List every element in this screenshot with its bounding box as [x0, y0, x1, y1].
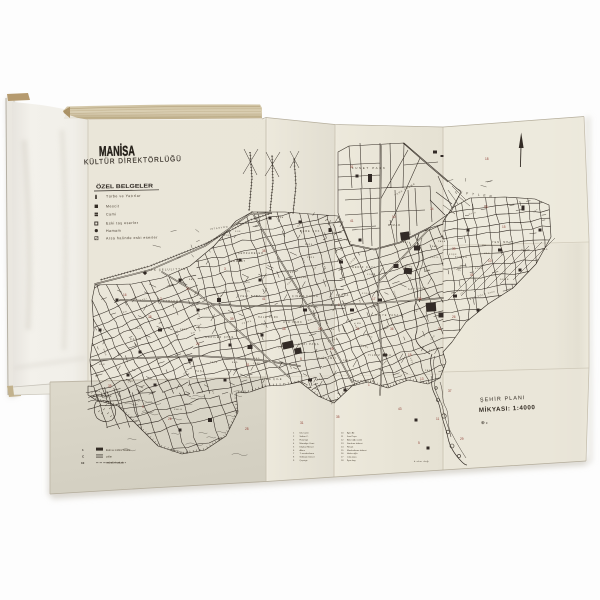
svg-text:BAĞ: BAĞ — [254, 357, 260, 360]
svg-text:MH: MH — [357, 323, 361, 325]
svg-text:Lala paşa: Lala paşa — [347, 457, 357, 459]
svg-text:HALK PARK: HALK PARK — [258, 316, 279, 319]
svg-text:39: 39 — [318, 327, 322, 331]
svg-text:PARK: PARK — [343, 359, 351, 362]
svg-text:38: 38 — [282, 327, 286, 331]
svg-text:KUŞLU: KUŞLU — [455, 256, 468, 259]
svg-text:5: 5 — [418, 441, 420, 445]
svg-text:VELI BABA: VELI BABA — [240, 295, 261, 298]
svg-text:26: 26 — [168, 417, 172, 421]
svg-text:9: 9 — [142, 405, 144, 409]
svg-text:Ulu Cami: Ulu Cami — [300, 433, 310, 435]
svg-text:31: 31 — [300, 421, 304, 425]
svg-text:35: 35 — [336, 415, 340, 419]
svg-text:Hafsa oğlu: Hafsa oğlu — [347, 452, 358, 455]
svg-text:Göktaşlı mescit: Göktaşlı mescit — [300, 456, 315, 459]
svg-text:Saruhan türbesi: Saruhan türbesi — [347, 442, 363, 445]
svg-text:TOP ÇULE: TOP ÇULE — [355, 380, 375, 383]
svg-text:3: 3 — [224, 267, 226, 271]
svg-text:Attar oğlu camii: Attar oğlu camii — [347, 438, 363, 441]
svg-text:CAMİ: CAMİ — [253, 362, 261, 365]
svg-text:KARAKÖY: KARAKÖY — [163, 300, 182, 303]
svg-text:39: 39 — [230, 317, 234, 321]
svg-text:DERE: DERE — [500, 279, 509, 281]
svg-text:28: 28 — [245, 427, 249, 431]
svg-text:MH: MH — [246, 282, 250, 284]
svg-text:GAZILER ÇHLE: GAZILER ÇHLE — [205, 336, 234, 339]
svg-text:ÇEŞME: ÇEŞME — [297, 277, 307, 279]
svg-text:PARK: PARK — [305, 243, 313, 246]
svg-text:41: 41 — [350, 219, 354, 223]
svg-text:BEY: BEY — [429, 350, 435, 352]
svg-text:KIZIL: KIZIL — [430, 257, 439, 259]
svg-text:ÇIĞLAMLI: ÇIĞLAMLI — [318, 357, 337, 360]
svg-text:Eski ve mühim binalar: Eski ve mühim binalar — [106, 449, 131, 452]
svg-text:25: 25 — [484, 205, 488, 209]
svg-text:MIMAR: MIMAR — [388, 224, 401, 227]
svg-text:20: 20 — [186, 287, 190, 291]
svg-text:10: 10 — [81, 461, 85, 465]
svg-text:Eski taş eserler: Eski taş eserler — [106, 221, 139, 226]
svg-text:43: 43 — [398, 407, 402, 411]
svg-text:Mescit: Mescit — [106, 204, 119, 208]
svg-text:29: 29 — [460, 437, 464, 441]
svg-text:AĞA: AĞA — [299, 295, 305, 298]
svg-text:TEPE: TEPE — [327, 329, 335, 331]
svg-text:BAĞ: BAĞ — [542, 248, 548, 251]
svg-text:41: 41 — [262, 297, 266, 301]
svg-text:35: 35 — [108, 384, 112, 388]
svg-text:16: 16 — [123, 293, 127, 297]
svg-text:1: 1 — [368, 383, 370, 387]
svg-text:T. mevlevihane: T. mevlevihane — [300, 453, 315, 455]
svg-text:13: 13 — [420, 377, 424, 381]
svg-text:ÇAYIR: ÇAYIR — [130, 338, 142, 341]
svg-text:36: 36 — [418, 297, 422, 301]
svg-text:KALE: KALE — [174, 408, 183, 411]
svg-text:17: 17 — [372, 297, 376, 301]
svg-text:GAZI PAŞA: GAZI PAŞA — [298, 343, 319, 346]
svg-text:34: 34 — [430, 207, 434, 211]
svg-text:DERE SOK: DERE SOK — [300, 230, 320, 233]
svg-text:YILDIZ PAŞA: YILDIZ PAŞA — [368, 354, 392, 357]
svg-text:LIMA ÇILE: LIMA ÇILE — [262, 378, 282, 381]
svg-text:MH: MH — [482, 245, 486, 247]
svg-text:İlyas bey: İlyas bey — [347, 459, 357, 462]
svg-text:10: 10 — [392, 215, 396, 219]
svg-text:18: 18 — [485, 157, 489, 161]
svg-text:HAN: HAN — [484, 252, 490, 255]
svg-text:LUNET PARK: LUNET PARK — [352, 166, 387, 170]
svg-text:KÖŞK: KÖŞK — [449, 253, 457, 256]
svg-text:KÖŞK: KÖŞK — [475, 267, 483, 270]
svg-text:PARK: PARK — [307, 256, 315, 259]
svg-text:ÖZEL BELGELER: ÖZEL BELGELER — [96, 183, 153, 191]
svg-text:HAN: HAN — [135, 327, 141, 330]
svg-text:Cami: Cami — [106, 212, 116, 216]
svg-text:TEPE: TEPE — [315, 379, 323, 381]
svg-text:PAŞA: PAŞA — [195, 370, 205, 373]
svg-text:Çeşnigir: Çeşnigir — [300, 459, 308, 462]
svg-text:Muradiye Cami: Muradiye Cami — [300, 442, 315, 445]
svg-text:SOK: SOK — [235, 231, 241, 233]
svg-text:Sultan C.: Sultan C. — [300, 435, 309, 438]
svg-text:31: 31 — [438, 327, 442, 331]
svg-text:Mevlevihane türbesi: Mevlevihane türbesi — [347, 449, 367, 452]
svg-text:36: 36 — [390, 327, 394, 331]
svg-text:15: 15 — [408, 353, 412, 357]
svg-text:Türbe ve Yatırlar: Türbe ve Yatırlar — [106, 194, 141, 199]
svg-text:ŞEHZADELER: ŞEHZADELER — [238, 252, 264, 255]
svg-text:YENI MH: YENI MH — [492, 241, 509, 244]
svg-text:26: 26 — [452, 315, 456, 319]
svg-text:AĞA: AĞA — [256, 332, 262, 335]
svg-text:SERABAT: SERABAT — [228, 260, 246, 263]
svg-text:BAĞ: BAĞ — [232, 361, 238, 364]
svg-text:BEY: BEY — [403, 242, 409, 244]
svg-text:Aynı Ali: Aynı Ali — [347, 432, 355, 435]
svg-text:yollar: yollar — [106, 455, 112, 458]
svg-text:KÖŞK: KÖŞK — [224, 234, 232, 237]
svg-text:31: 31 — [246, 363, 250, 367]
svg-text:PAŞA: PAŞA — [438, 240, 446, 243]
svg-text:2: 2 — [160, 297, 162, 301]
svg-text:İvaz Paşa: İvaz Paşa — [347, 435, 357, 438]
svg-text:KÖŞK: KÖŞK — [362, 292, 370, 295]
svg-text:KÖŞK: KÖŞK — [367, 273, 375, 276]
svg-text:PAŞA: PAŞA — [425, 369, 433, 372]
svg-text:Hatuniye: Hatuniye — [300, 438, 309, 441]
svg-text:1: 1 — [338, 303, 340, 307]
svg-text:⊕ c: ⊕ c — [481, 420, 488, 425]
svg-text:BAĞ: BAĞ — [189, 278, 195, 281]
svg-text:TEPE: TEPE — [210, 362, 218, 364]
svg-text:SK: SK — [414, 311, 418, 313]
svg-text:ÇAPRA: ÇAPRA — [336, 294, 349, 297]
svg-text:Dilşikar Mescit: Dilşikar Mescit — [300, 445, 314, 448]
svg-text:11: 11 — [436, 417, 440, 421]
svg-text:b akar dağı: b akar dağı — [414, 460, 429, 463]
svg-text:15: 15 — [502, 225, 506, 229]
svg-text:HAN: HAN — [99, 363, 105, 366]
svg-text:ÇINAR ÇIHAN: ÇINAR ÇIHAN — [292, 295, 319, 298]
svg-text:TEPE: TEPE — [288, 272, 296, 274]
svg-text:5: 5 — [300, 357, 302, 361]
svg-text:41: 41 — [470, 273, 474, 277]
svg-text:Alaca: Alaca — [300, 449, 306, 452]
svg-text:HAN: HAN — [424, 269, 430, 272]
svg-text:GEDIZ ÇAYI: GEDIZ ÇAYI — [352, 266, 375, 269]
svg-text:25: 25 — [330, 347, 334, 351]
svg-text:39: 39 — [452, 247, 456, 251]
svg-text:HIDYE PAŞA: HIDYE PAŞA — [375, 314, 399, 317]
svg-text:PARK: PARK — [180, 328, 188, 331]
svg-text:ULU PARK: ULU PARK — [283, 321, 303, 324]
svg-text:BAĞ: BAĞ — [432, 245, 438, 248]
svg-text:mahalle hududu: mahalle hududu — [106, 462, 124, 465]
svg-text:SK: SK — [408, 278, 412, 280]
svg-text:Hamam: Hamam — [106, 229, 121, 233]
svg-text:24: 24 — [196, 342, 200, 346]
svg-text:ard: ard — [96, 391, 100, 393]
svg-text:HAV BERE: HAV BERE — [90, 394, 113, 398]
svg-text:PAŞA: PAŞA — [276, 216, 284, 219]
svg-text:Revak: Revak — [347, 446, 354, 448]
svg-text:37: 37 — [448, 389, 452, 393]
svg-text:38: 38 — [148, 315, 152, 319]
svg-text:10: 10 — [488, 259, 492, 263]
